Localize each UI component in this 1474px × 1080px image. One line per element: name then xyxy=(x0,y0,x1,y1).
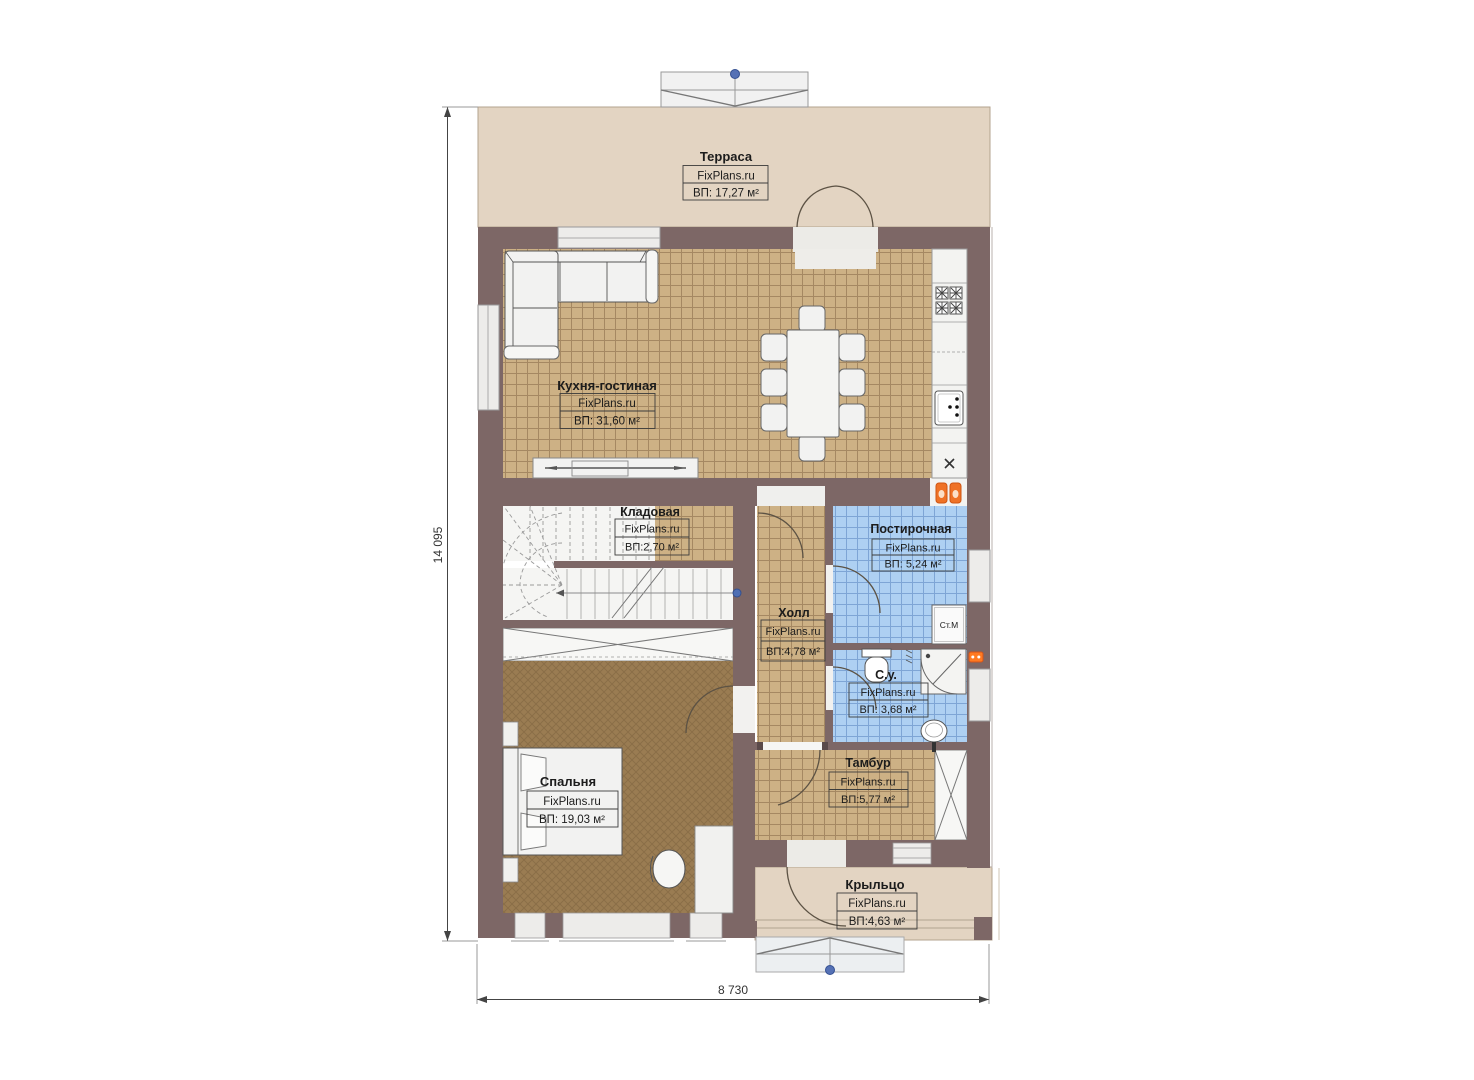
svg-text:Тамбур: Тамбур xyxy=(845,756,891,770)
svg-text:ВП:5,77 м²: ВП:5,77 м² xyxy=(841,794,895,806)
svg-text:14 095: 14 095 xyxy=(431,526,445,563)
svg-text:Постирочная: Постирочная xyxy=(870,522,951,536)
svg-text:FixPlans.ru: FixPlans.ru xyxy=(578,398,636,410)
svg-text:С.у.: С.у. xyxy=(875,668,897,682)
svg-text:ВП:4,63 м²: ВП:4,63 м² xyxy=(849,916,906,928)
svg-text:Спальня: Спальня xyxy=(540,774,596,789)
svg-text:Кухня-гостиная: Кухня-гостиная xyxy=(557,378,657,393)
svg-text:ВП:2,70 м²: ВП:2,70 м² xyxy=(625,542,679,554)
svg-text:FixPlans.ru: FixPlans.ru xyxy=(848,898,906,910)
svg-text:Холл: Холл xyxy=(778,606,809,620)
svg-text:ВП: 17,27 м²: ВП: 17,27 м² xyxy=(693,188,759,200)
svg-text:ВП: 19,03 м²: ВП: 19,03 м² xyxy=(539,814,605,826)
svg-text:FixPlans.ru: FixPlans.ru xyxy=(860,687,915,699)
svg-text:Терраса: Терраса xyxy=(700,149,753,164)
svg-text:FixPlans.ru: FixPlans.ru xyxy=(624,524,679,536)
svg-text:Ст.М: Ст.М xyxy=(940,620,959,630)
svg-text:Кладовая: Кладовая xyxy=(620,505,680,519)
svg-text:ВП: 3,68 м²: ВП: 3,68 м² xyxy=(859,704,916,716)
svg-text:FixPlans.ru: FixPlans.ru xyxy=(697,171,755,183)
svg-text:ВП: 5,24 м²: ВП: 5,24 м² xyxy=(884,559,941,571)
svg-text:FixPlans.ru: FixPlans.ru xyxy=(765,626,820,638)
svg-text:FixPlans.ru: FixPlans.ru xyxy=(543,796,601,808)
svg-text:ВП: 31,60 м²: ВП: 31,60 м² xyxy=(574,416,640,428)
svg-text:ВП:4,78 м²: ВП:4,78 м² xyxy=(766,646,820,658)
svg-text:FixPlans.ru: FixPlans.ru xyxy=(840,777,895,789)
svg-text:Крыльцо: Крыльцо xyxy=(845,877,904,892)
svg-text:8 730: 8 730 xyxy=(718,983,748,997)
svg-text:FixPlans.ru: FixPlans.ru xyxy=(885,543,940,555)
